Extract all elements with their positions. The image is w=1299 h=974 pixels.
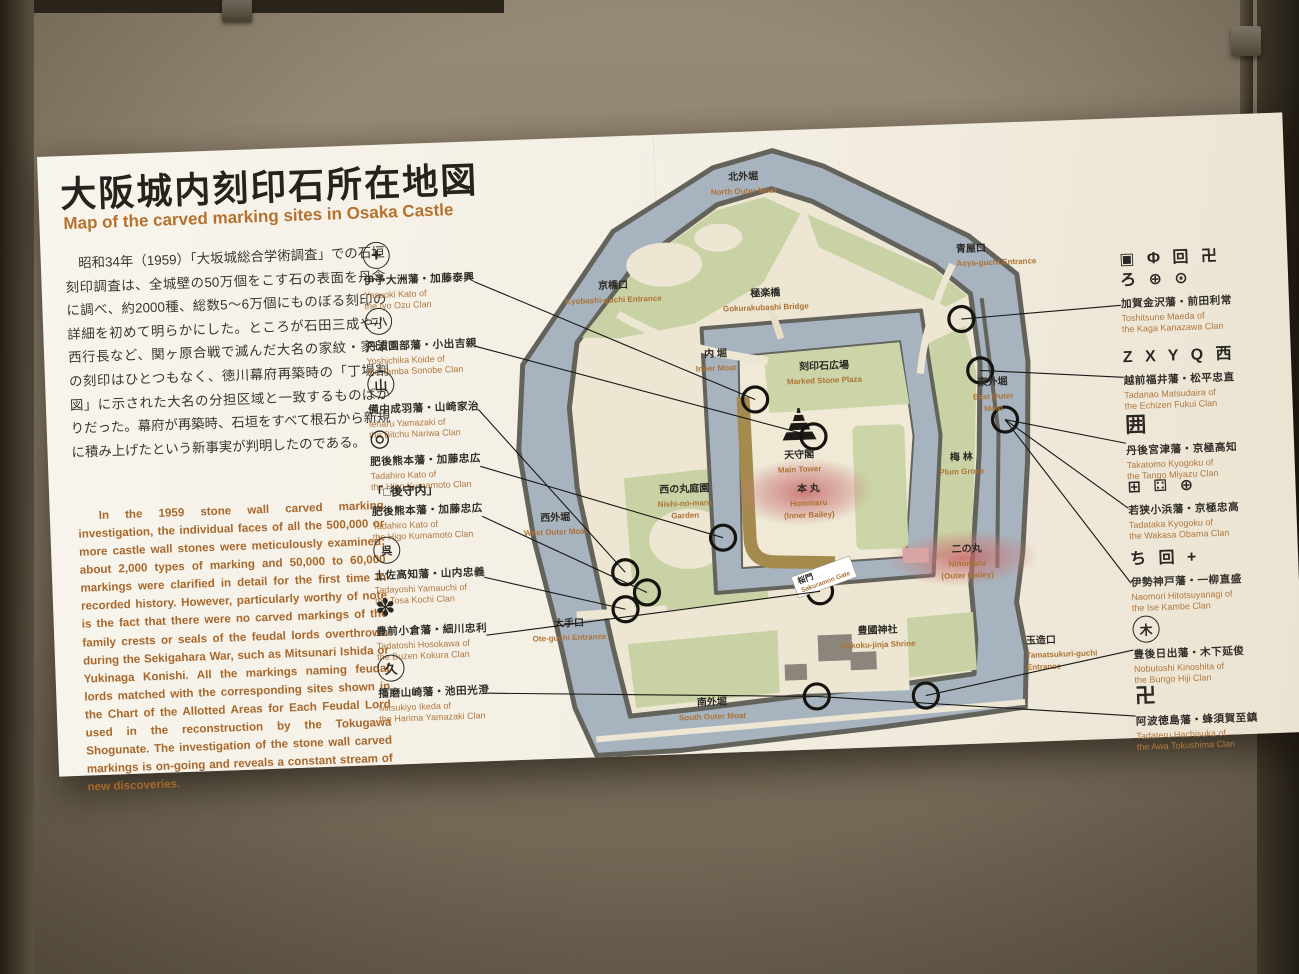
map-label-en: Aoya-guchi Entrance (956, 256, 1037, 268)
map-label-en: Ninomaru (948, 558, 986, 568)
map-label-en: Plum Grove (939, 466, 985, 477)
map-label-en: Inner Moat (696, 363, 737, 373)
map-label-ja: 西外堀 (540, 510, 570, 524)
legend-item-awa-tokushima: 卍 阿波徳島藩・蜂須賀至鎮 Tadateru Hachisuka of the … (1135, 677, 1299, 753)
legend-item-harima-yamazaki: 久 播磨山崎藩・池田光澄 Mitsukiyo Ikeda of the Hari… (377, 650, 517, 725)
legend-item-bungo-hiji: 木 豊後日出藩・木下延俊 Nobutoshi Kinoshita of the … (1132, 610, 1299, 686)
legend-item-wakasa-obama: ⊞ ⚃ ⊕ 若狭小浜藩・京極忠高 Tadataka Kyogoku of the… (1127, 472, 1297, 542)
hanging-rail-right (1240, 0, 1253, 128)
castle-map: 北外堀 North Outer Moat 青屋口 Aoya-guchi Entr… (37, 112, 1299, 776)
map-label-ja: 天守閣 (784, 447, 814, 461)
clan-crest-icon: 木 (1132, 615, 1160, 643)
clan-crest-icon: + (362, 241, 390, 269)
map-label-ja: 本 丸 (797, 481, 821, 495)
hanging-bracket-right (1231, 26, 1261, 56)
map-label-en: Main Tower (778, 464, 822, 475)
clan-crest-icon: 久 (377, 654, 405, 682)
legend-item-iyo-ozu: + 伊予大洲藩・加藤泰興 Yasuoki Kato of the Iyo Ozu… (362, 237, 502, 312)
nine-star-crest-icon: ✽ (375, 592, 514, 621)
map-label-en: (Inner Bailey) (784, 510, 835, 521)
map-label-en: Garden (671, 511, 699, 521)
clan-marks-icons: 囲 (1125, 406, 1294, 439)
map-label-en: East Outer (973, 391, 1014, 401)
clan-crest-icon: 二八 (365, 307, 393, 335)
map-label-ja: 南外堀 (697, 695, 727, 709)
map-label-ja: 京橋口 (598, 278, 628, 292)
map-label-en: Moat (984, 404, 1003, 414)
legend-item-kaga-kanazawa: ▣ Φ 回 卍 ろ ⊕ ⊙ 加賀金沢藩・前田利常 Toshitsune Maed… (1119, 244, 1290, 334)
wall-shadow-left (0, 0, 34, 974)
hanging-bracket-left (222, 0, 252, 22)
map-label-en: (Outer Bailey) (941, 570, 994, 581)
ninomaru-pink-block (903, 547, 930, 563)
map-label-en: Tamatsukuri-guchi (1026, 648, 1097, 660)
legend-item-echizen-fukui: Z X Y Q 西 越前福井藩・松平忠直 Tadanao Matsudaira … (1123, 342, 1293, 412)
map-label-ja: 東外堀 (977, 374, 1007, 388)
map-label-ja: 極楽橋 (750, 285, 781, 299)
ceiling-rail (34, 0, 504, 13)
map-label-ja: 玉造口 (1026, 633, 1056, 647)
legend-item-tango-miyazu: 囲 丹後宮津藩・京極高知 Takatomo Kyogoku of the Tan… (1125, 406, 1295, 482)
shrine-building (785, 664, 808, 681)
clan-crest-icon: ◎ (369, 422, 508, 451)
clan-crest-icon: 山 (367, 370, 395, 398)
map-label-ja: 内 堀 (704, 346, 727, 360)
clan-marks-icons: 卍 (1135, 677, 1299, 710)
map-label-en: Hommaru (790, 498, 828, 508)
information-board: 大阪城内刻印石所在地図 Map of the carved marking si… (37, 112, 1299, 776)
clan-seal-text-icon: 「□後守内」 (371, 478, 510, 500)
map-label-ja: 北外堀 (728, 169, 758, 183)
clan-crest-icon: 呉 (373, 536, 401, 564)
legend-item-ise-kambe: ち 回 + 伊勢神戸藩・一柳直盛 Naomori Hitotsuyanagi o… (1130, 544, 1299, 614)
map-label-ja: 青屋口 (956, 241, 986, 255)
map-label-ja: 二の丸 (951, 541, 982, 555)
map-label-ja: 梅 林 (950, 450, 974, 464)
shrine-building (850, 651, 877, 670)
clan-marks-icons: ▣ Φ 回 卍 ろ ⊕ ⊙ (1119, 244, 1288, 292)
